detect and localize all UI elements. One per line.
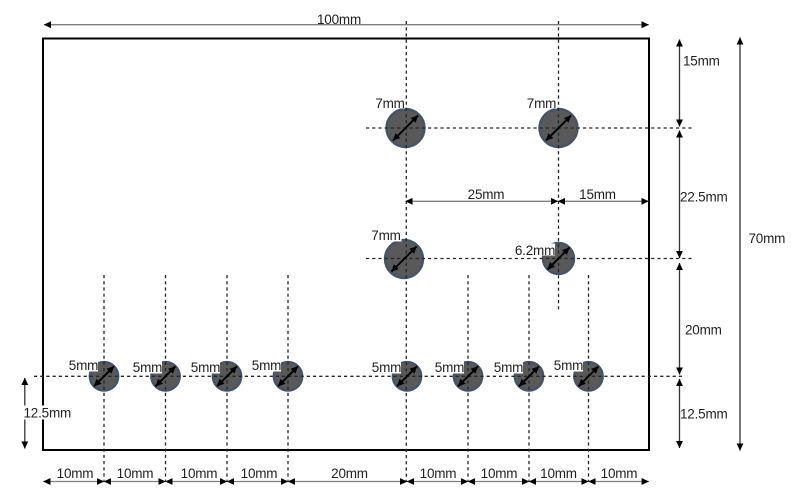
svg-text:5mm: 5mm — [252, 358, 281, 373]
svg-text:5mm: 5mm — [191, 360, 220, 375]
svg-text:5mm: 5mm — [69, 358, 98, 373]
svg-text:100mm: 100mm — [317, 12, 361, 27]
svg-text:5mm: 5mm — [494, 360, 523, 375]
svg-text:15mm: 15mm — [579, 187, 616, 202]
svg-text:22.5mm: 22.5mm — [680, 190, 728, 205]
svg-text:15mm: 15mm — [683, 54, 720, 69]
svg-text:10mm: 10mm — [601, 466, 638, 481]
svg-text:25mm: 25mm — [468, 187, 505, 202]
svg-text:12.5mm: 12.5mm — [680, 407, 728, 422]
svg-text:5mm: 5mm — [435, 360, 464, 375]
svg-text:10mm: 10mm — [241, 466, 278, 481]
svg-text:10mm: 10mm — [57, 466, 94, 481]
svg-text:70mm: 70mm — [749, 231, 786, 246]
svg-text:7mm: 7mm — [527, 96, 556, 111]
svg-text:10mm: 10mm — [117, 466, 154, 481]
svg-text:10mm: 10mm — [481, 466, 518, 481]
svg-text:7mm: 7mm — [371, 228, 400, 243]
svg-text:20mm: 20mm — [685, 323, 722, 338]
svg-text:12.5mm: 12.5mm — [24, 406, 72, 421]
svg-text:20mm: 20mm — [331, 466, 368, 481]
svg-text:6.2mm: 6.2mm — [515, 243, 555, 258]
svg-text:10mm: 10mm — [540, 466, 577, 481]
svg-text:10mm: 10mm — [181, 466, 218, 481]
svg-text:5mm: 5mm — [133, 360, 162, 375]
svg-text:10mm: 10mm — [420, 466, 457, 481]
svg-text:5mm: 5mm — [554, 358, 583, 373]
svg-text:5mm: 5mm — [372, 360, 401, 375]
svg-text:7mm: 7mm — [375, 96, 404, 111]
